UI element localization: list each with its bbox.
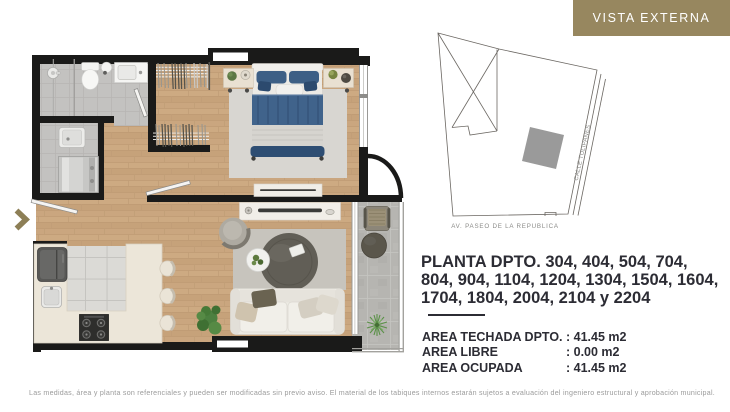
- svg-text:CALLE TULIPANES: CALLE TULIPANES: [574, 124, 593, 181]
- svg-text:AV. PASEO DE LA REPUBLICA: AV. PASEO DE LA REPUBLICA: [451, 223, 559, 230]
